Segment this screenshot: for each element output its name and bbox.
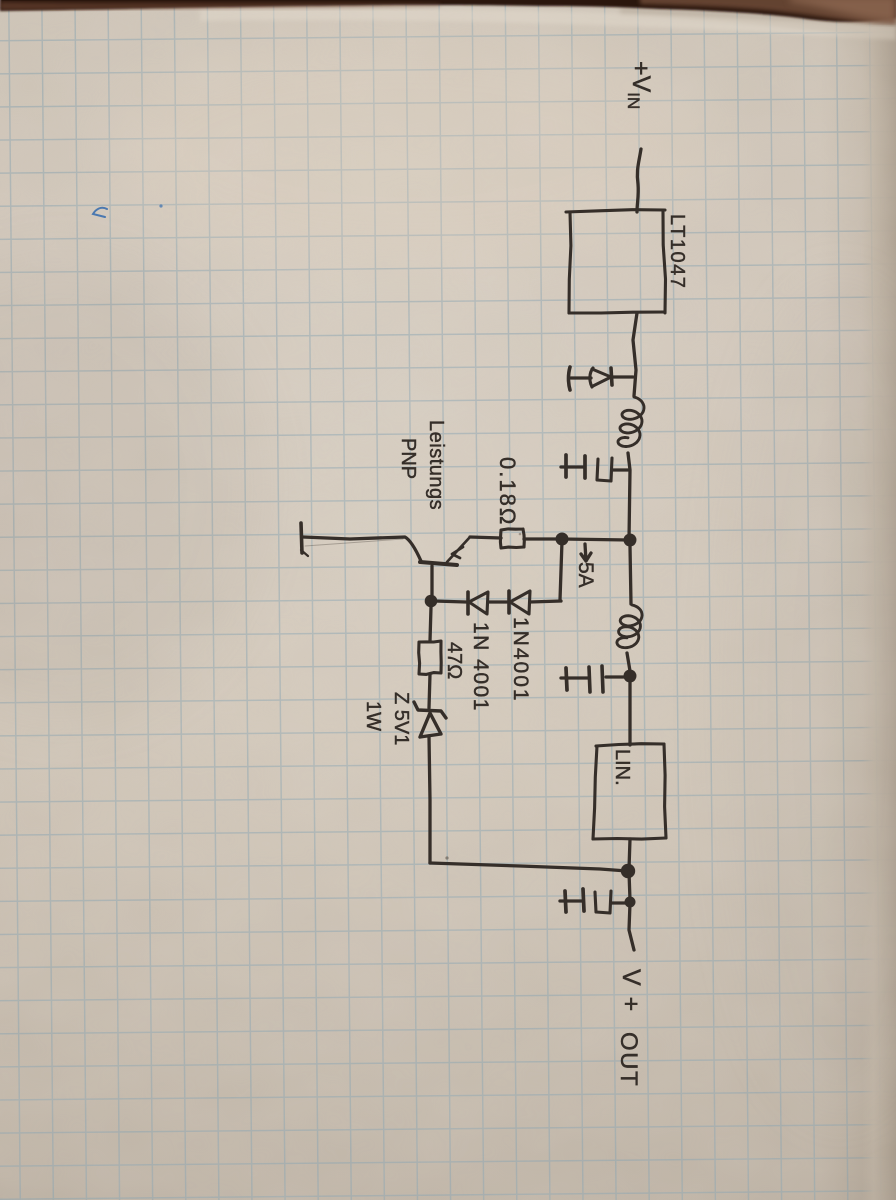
svg-text:Z 5V1: Z 5V1 xyxy=(390,692,412,745)
svg-text:0.18Ω: 0.18Ω xyxy=(495,457,520,526)
svg-text:47Ω: 47Ω xyxy=(443,642,465,679)
svg-text:1N 4001: 1N 4001 xyxy=(469,622,492,712)
svg-text:1N4001: 1N4001 xyxy=(509,617,532,703)
svg-text:V +: V + xyxy=(617,969,645,1013)
svg-text:5A: 5A xyxy=(574,562,597,588)
svg-text:LIN.: LIN. xyxy=(611,749,633,786)
svg-text:1W: 1W xyxy=(362,701,384,731)
svg-text:LT1047: LT1047 xyxy=(666,214,688,289)
svg-text:OUT: OUT xyxy=(615,1032,642,1087)
svg-text:Leistungs: Leistungs xyxy=(425,420,447,510)
svg-text:PNP: PNP xyxy=(397,438,419,479)
